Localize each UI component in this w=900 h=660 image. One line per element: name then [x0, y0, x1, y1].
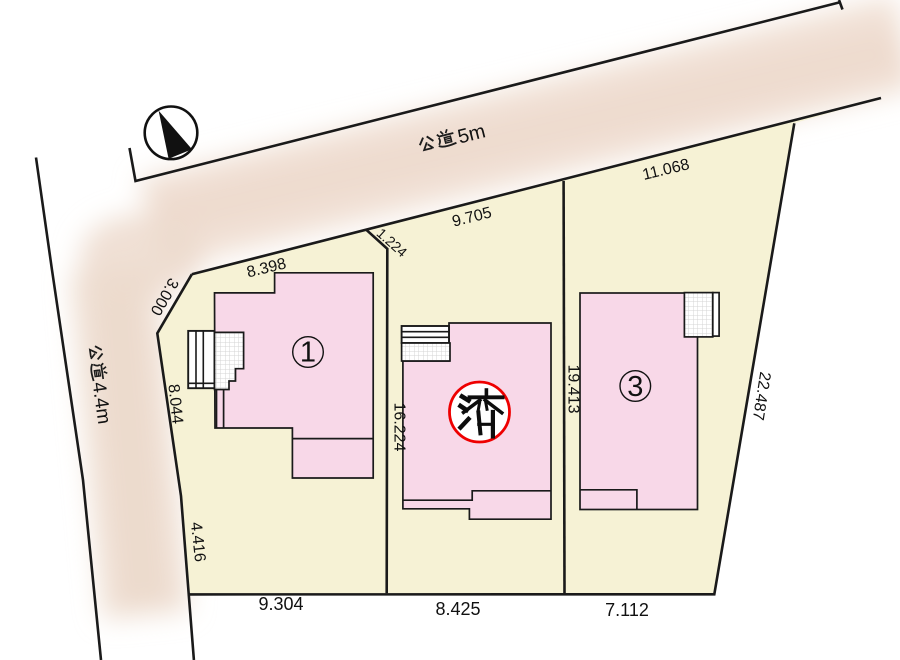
svg-text:8.425: 8.425 [435, 599, 480, 619]
svg-text:16.224: 16.224 [391, 403, 408, 452]
svg-text:3: 3 [627, 371, 643, 403]
svg-text:1: 1 [300, 337, 316, 369]
svg-text:19.413: 19.413 [565, 365, 582, 414]
svg-text:7.112: 7.112 [605, 600, 649, 620]
svg-text:22.487: 22.487 [749, 371, 773, 422]
svg-text:9.304: 9.304 [258, 594, 303, 614]
